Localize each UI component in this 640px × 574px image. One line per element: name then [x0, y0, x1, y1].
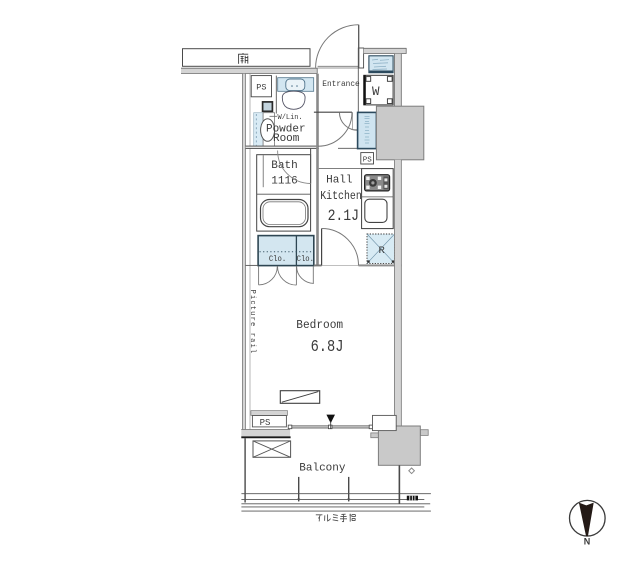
- svg-text:Room: Room: [273, 133, 300, 145]
- svg-text:Balcony: Balcony: [299, 462, 346, 474]
- svg-text:N: N: [584, 537, 591, 547]
- svg-text:W/Lin.: W/Lin.: [278, 114, 303, 122]
- svg-text:PS: PS: [256, 82, 266, 92]
- svg-text:Clo.: Clo.: [297, 256, 314, 264]
- svg-text:W: W: [372, 85, 380, 99]
- svg-text:Bedroom: Bedroom: [296, 319, 343, 332]
- svg-text:2.1J: 2.1J: [328, 208, 359, 225]
- svg-text:1116: 1116: [271, 175, 297, 187]
- svg-text:Clo.: Clo.: [269, 256, 286, 264]
- svg-text:Kitchen: Kitchen: [320, 190, 362, 203]
- svg-text:6.8J: 6.8J: [311, 337, 344, 357]
- svg-text:Hall: Hall: [326, 175, 352, 187]
- svg-text:Picture rail: Picture rail: [248, 290, 256, 355]
- svg-text:PS: PS: [260, 418, 271, 428]
- svg-text:PS: PS: [363, 156, 373, 164]
- svg-text:Entrance: Entrance: [322, 80, 360, 89]
- svg-text:R: R: [378, 245, 385, 257]
